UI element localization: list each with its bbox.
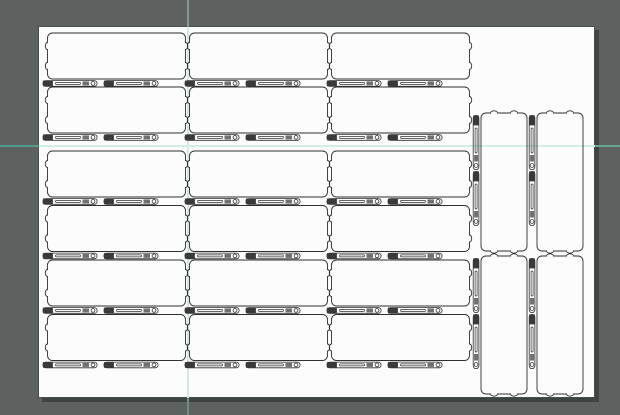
panel-unit-r1-c3 — [327, 33, 472, 86]
vertical-panel-unit-1 — [473, 111, 527, 253]
panel-piece[interactable] — [329, 151, 471, 197]
pin-piece-vertical[interactable] — [473, 115, 479, 169]
pin-piece[interactable] — [246, 362, 300, 368]
panel-unit-r1-c2 — [185, 33, 330, 86]
pin-piece[interactable] — [327, 199, 381, 205]
panel-unit-r1-c1 — [43, 33, 188, 86]
pin-piece[interactable] — [104, 199, 158, 205]
panel-unit-r5-c1 — [43, 260, 188, 313]
panel-piece[interactable] — [45, 87, 187, 133]
application-canvas-viewport — [0, 0, 620, 415]
panel-piece[interactable] — [187, 87, 329, 133]
pin-piece[interactable] — [185, 199, 239, 205]
pin-piece[interactable] — [327, 253, 381, 259]
panel-piece[interactable] — [329, 315, 471, 361]
panel-unit-r4-c3 — [327, 206, 472, 259]
panel-piece[interactable] — [187, 315, 329, 361]
panel-piece[interactable] — [329, 87, 471, 133]
panel-piece[interactable] — [329, 33, 471, 79]
pin-piece[interactable] — [246, 253, 300, 259]
panel-unit-r5-c3 — [327, 260, 472, 313]
panel-piece[interactable] — [187, 206, 329, 252]
panel-piece[interactable] — [45, 206, 187, 252]
pin-piece[interactable] — [327, 308, 381, 314]
panel-piece[interactable] — [329, 206, 471, 252]
pin-piece[interactable] — [246, 135, 300, 141]
pin-piece[interactable] — [104, 362, 158, 368]
pin-piece[interactable] — [43, 81, 97, 87]
pin-piece[interactable] — [185, 253, 239, 259]
panel-piece[interactable] — [329, 260, 471, 306]
pin-piece[interactable] — [388, 253, 442, 259]
panel-piece-vertical[interactable] — [537, 254, 583, 396]
pin-piece[interactable] — [388, 308, 442, 314]
panel-unit-r6-c1 — [43, 315, 188, 368]
panel-unit-r4-c1 — [43, 206, 188, 259]
pin-piece[interactable] — [104, 135, 158, 141]
pin-piece[interactable] — [388, 81, 442, 87]
panel-piece[interactable] — [187, 33, 329, 79]
pin-piece-vertical[interactable] — [473, 314, 479, 368]
panel-unit-r5-c2 — [185, 260, 330, 313]
pin-piece-vertical[interactable] — [473, 258, 479, 312]
pin-piece[interactable] — [185, 135, 239, 141]
pin-piece[interactable] — [185, 308, 239, 314]
vertical-panel-unit-2 — [529, 111, 583, 253]
pin-piece[interactable] — [246, 81, 300, 87]
pin-piece[interactable] — [104, 253, 158, 259]
pin-piece-vertical[interactable] — [529, 171, 535, 225]
pin-piece[interactable] — [388, 135, 442, 141]
panel-piece-vertical[interactable] — [481, 111, 527, 253]
pin-piece[interactable] — [104, 308, 158, 314]
panel-piece[interactable] — [45, 315, 187, 361]
pin-piece[interactable] — [388, 362, 442, 368]
panel-piece[interactable] — [45, 260, 187, 306]
vertical-panel-unit-4 — [529, 254, 583, 396]
panel-piece-vertical[interactable] — [481, 254, 527, 396]
pin-piece-vertical[interactable] — [529, 115, 535, 169]
panel-piece[interactable] — [187, 260, 329, 306]
pin-piece[interactable] — [43, 362, 97, 368]
pieces-layer — [0, 0, 620, 415]
pin-piece[interactable] — [246, 199, 300, 205]
pin-piece[interactable] — [43, 253, 97, 259]
pin-piece[interactable] — [327, 362, 381, 368]
panel-unit-r3-c3 — [327, 151, 472, 204]
pin-piece[interactable] — [185, 81, 239, 87]
pin-piece[interactable] — [104, 81, 158, 87]
pin-piece-vertical[interactable] — [529, 258, 535, 312]
panel-unit-r6-c3 — [327, 315, 472, 368]
panel-unit-r2-c3 — [327, 87, 472, 140]
vertical-panel-unit-3 — [473, 254, 527, 396]
panel-unit-r2-c2 — [185, 87, 330, 140]
pin-piece[interactable] — [246, 308, 300, 314]
panel-unit-r2-c1 — [43, 87, 188, 140]
panel-unit-r4-c2 — [185, 206, 330, 259]
panel-unit-r3-c2 — [185, 151, 330, 204]
pin-piece-vertical[interactable] — [473, 171, 479, 225]
panel-unit-r6-c2 — [185, 315, 330, 368]
pin-piece[interactable] — [43, 308, 97, 314]
pin-piece[interactable] — [185, 362, 239, 368]
pin-piece-vertical[interactable] — [529, 314, 535, 368]
pin-piece[interactable] — [327, 81, 381, 87]
pin-piece[interactable] — [388, 199, 442, 205]
pin-piece[interactable] — [43, 135, 97, 141]
panel-piece[interactable] — [187, 151, 329, 197]
panel-piece[interactable] — [45, 151, 187, 197]
pin-piece[interactable] — [327, 135, 381, 141]
panel-piece-vertical[interactable] — [537, 111, 583, 253]
panel-piece[interactable] — [45, 33, 187, 79]
panel-unit-r3-c1 — [43, 151, 188, 204]
pin-piece[interactable] — [43, 199, 97, 205]
